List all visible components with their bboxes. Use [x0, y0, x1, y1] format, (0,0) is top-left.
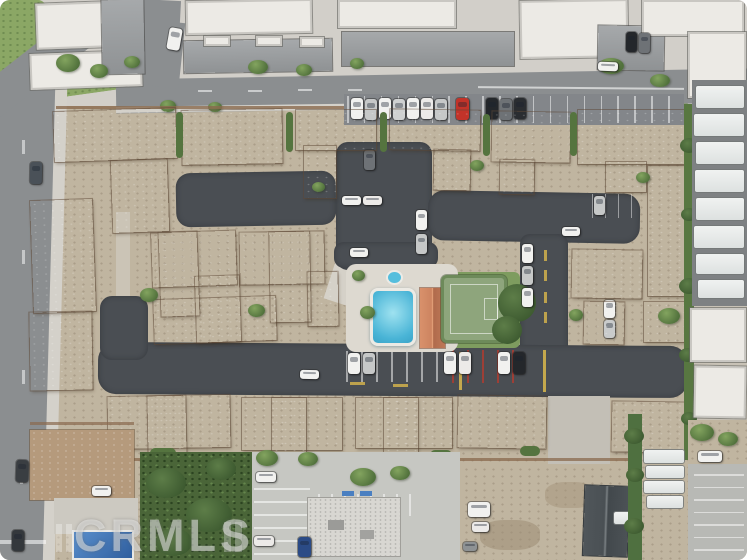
condo-roof	[584, 302, 625, 345]
hedge	[520, 446, 540, 456]
tree	[248, 60, 268, 74]
stall-line	[631, 194, 632, 218]
rv-trailer	[696, 198, 744, 220]
stall-line	[694, 474, 744, 476]
lane-dash	[22, 140, 25, 154]
yellow-dash	[544, 270, 547, 281]
stall-line	[605, 194, 606, 218]
condo-roof	[384, 398, 418, 456]
condo-roof	[648, 166, 686, 296]
bush	[146, 468, 186, 498]
watermark: CRMLS	[74, 510, 254, 560]
building-white-roof	[690, 308, 746, 362]
tree	[312, 182, 325, 192]
hedge	[483, 114, 490, 156]
yellow-dash	[544, 250, 547, 261]
hedge	[176, 112, 183, 158]
rooftop-unit	[360, 530, 374, 539]
condo-roof	[500, 160, 535, 195]
rv-trailer	[694, 114, 744, 136]
parked-car	[639, 33, 650, 53]
building-white-roof	[338, 0, 456, 28]
tree	[248, 304, 265, 317]
parked-car	[348, 353, 360, 374]
building-white-roof	[186, 0, 313, 35]
condo-roof	[308, 272, 339, 327]
stall-line	[391, 351, 393, 382]
parked-car	[513, 352, 525, 374]
parked-car	[562, 227, 580, 236]
commercial-flat-roof	[30, 430, 134, 500]
parked-car	[459, 352, 471, 374]
parked-car	[342, 196, 361, 205]
stall-line	[254, 501, 310, 503]
parked-car	[416, 210, 427, 230]
dirt-patch	[480, 520, 540, 550]
lane-dash	[22, 370, 25, 384]
bush	[206, 458, 236, 480]
stall-line	[409, 494, 411, 516]
parked-car	[598, 62, 618, 72]
tree	[352, 270, 365, 281]
tree	[56, 54, 80, 72]
parked-car	[16, 460, 29, 482]
court-key-line	[484, 298, 498, 320]
tree	[650, 74, 670, 87]
parked-car	[444, 352, 456, 374]
clubhouse-roof	[420, 288, 445, 348]
parked-car	[626, 32, 637, 52]
carport-cap	[256, 36, 282, 46]
condo-roof	[195, 275, 241, 342]
stall-line	[694, 549, 744, 551]
parked-van	[698, 451, 722, 462]
yellow-dash	[393, 384, 408, 387]
lane-dash	[22, 250, 25, 264]
condo-roof	[458, 395, 547, 449]
condo-roof	[111, 159, 169, 233]
condo-roof	[269, 232, 311, 323]
tree	[636, 172, 650, 183]
tree	[569, 309, 583, 321]
tree	[658, 308, 680, 324]
stall-line	[406, 351, 408, 382]
condo-roof	[578, 110, 684, 164]
condo-roof	[492, 111, 571, 162]
parked-car	[522, 266, 533, 285]
stall-line	[254, 514, 310, 516]
condo-roof	[272, 398, 306, 458]
parked-car	[363, 196, 382, 205]
tree	[140, 288, 158, 302]
tree	[718, 432, 738, 446]
stall-line	[694, 537, 744, 539]
watermark-bar	[56, 524, 62, 552]
tree	[350, 468, 376, 486]
car-driving	[300, 370, 319, 379]
stall-line	[694, 487, 744, 489]
parked-car	[594, 196, 605, 215]
building-white-roof	[642, 0, 744, 36]
rv-trailer	[696, 142, 744, 164]
parked-car	[522, 244, 533, 263]
parked-car	[363, 353, 375, 374]
tree	[360, 306, 375, 319]
bush	[492, 316, 522, 344]
rv-trailer	[695, 170, 744, 192]
parked-car	[498, 352, 510, 374]
building-white-roof	[694, 366, 747, 419]
hedge	[570, 112, 577, 156]
condo-roof	[572, 249, 643, 298]
stall-line	[376, 351, 378, 382]
condo-roof	[53, 108, 177, 162]
hedge	[286, 112, 293, 152]
condo-roof	[29, 311, 92, 390]
condo-roof	[390, 109, 481, 151]
parked-car	[416, 234, 427, 254]
red-stall-line	[482, 350, 484, 383]
lane-dash	[248, 90, 262, 92]
rv-trailer	[644, 481, 684, 493]
parked-car	[350, 248, 368, 257]
tree	[90, 64, 108, 78]
rv-trailer	[694, 226, 744, 248]
tree	[256, 450, 278, 466]
condo-roof	[182, 109, 283, 165]
carport-gray-roof	[342, 32, 514, 66]
condo-roof	[296, 110, 376, 150]
parked-van	[472, 522, 489, 532]
parked-car	[364, 150, 375, 170]
tree	[470, 160, 484, 171]
rv-trailer	[646, 466, 684, 478]
tree	[124, 56, 140, 68]
gravel-roof-building	[308, 498, 400, 556]
carport-cap	[300, 37, 324, 47]
rooftop-unit	[328, 520, 344, 530]
parked-car	[522, 288, 533, 307]
rv-trailer	[647, 496, 683, 508]
rv-trailer	[698, 280, 744, 298]
rv-trailer	[644, 450, 684, 463]
condo-roof	[434, 150, 471, 191]
blue-awning	[342, 491, 354, 496]
parked-car	[298, 537, 311, 557]
rv-trailer	[696, 86, 744, 108]
stall-line	[254, 527, 310, 529]
aerial-photo: CRMLS	[0, 0, 747, 560]
yellow-curb	[543, 350, 546, 392]
stall-line	[694, 524, 744, 526]
parked-car	[254, 536, 274, 546]
tree	[690, 424, 714, 441]
drive	[100, 296, 148, 360]
parked-car	[30, 162, 42, 184]
parked-car	[463, 542, 477, 551]
stall-line	[436, 351, 438, 382]
lane-dash	[198, 90, 212, 92]
tree	[626, 468, 644, 482]
tree	[296, 64, 312, 76]
stall-line	[254, 488, 310, 490]
tree	[298, 452, 318, 466]
spa	[386, 270, 403, 285]
carport-cap	[204, 36, 230, 46]
stall-line	[694, 499, 744, 501]
watermark-bar	[66, 524, 72, 552]
tree	[350, 58, 364, 69]
rv-trailer	[696, 254, 744, 274]
condo-roof	[612, 401, 689, 452]
condo-roof	[30, 199, 96, 313]
blue-awning	[360, 491, 372, 496]
parked-car	[256, 472, 276, 482]
yellow-dash	[544, 312, 547, 323]
parked-car	[12, 530, 24, 551]
perimeter-fence	[30, 422, 134, 425]
tree	[390, 466, 410, 480]
stall-line	[618, 194, 619, 218]
hedge	[380, 112, 387, 152]
parked-car	[92, 486, 111, 496]
box-truck	[468, 502, 490, 517]
stall-line	[694, 512, 744, 514]
stall-line	[421, 351, 423, 382]
driveway-exit	[548, 396, 610, 464]
lane-dash	[298, 89, 312, 91]
yellow-dash	[544, 292, 547, 303]
lane-dash	[348, 89, 362, 91]
tree	[624, 428, 644, 444]
swimming-pool	[370, 288, 416, 346]
tree	[624, 518, 644, 534]
yellow-dash	[350, 382, 365, 385]
